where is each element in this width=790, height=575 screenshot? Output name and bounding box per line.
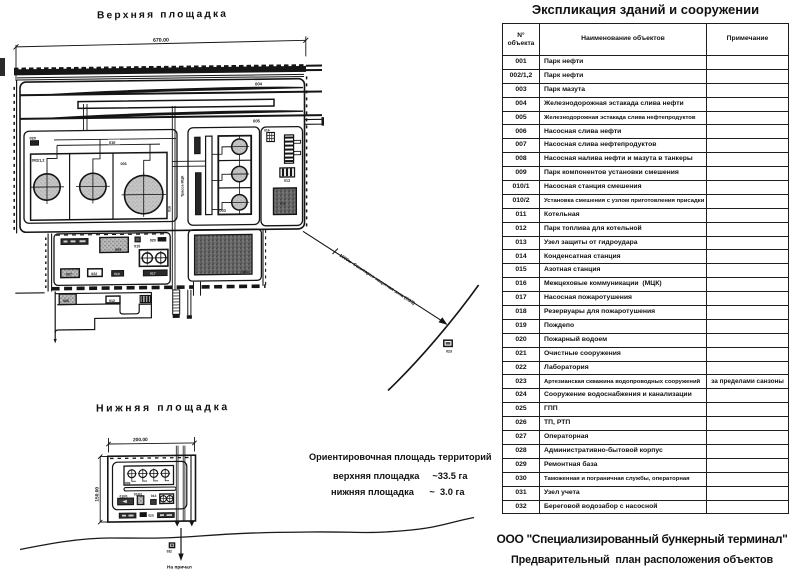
svg-text:013: 013 — [284, 179, 290, 183]
svg-text:Трасса МЦК: Трасса МЦК — [181, 175, 185, 197]
svg-text:019: 019 — [114, 272, 120, 276]
svg-text:021: 021 — [242, 270, 248, 274]
svg-text:022: 022 — [91, 272, 97, 276]
svg-text:016: 016 — [264, 128, 270, 132]
svg-text:012: 012 — [109, 299, 115, 303]
svg-text:016: 016 — [168, 206, 172, 212]
svg-text:150.00: 150.00 — [95, 487, 101, 502]
svg-text:017: 017 — [150, 272, 156, 276]
svg-text:027: 027 — [66, 272, 72, 276]
svg-text:009: 009 — [125, 481, 131, 485]
svg-text:001: 001 — [121, 162, 127, 166]
svg-text:005: 005 — [253, 118, 261, 123]
svg-text:013: 013 — [151, 494, 157, 498]
svg-text:670.00: 670.00 — [153, 38, 169, 44]
svg-text:003: 003 — [220, 209, 226, 213]
svg-text:006: 006 — [63, 299, 69, 303]
svg-text:015: 015 — [134, 244, 140, 248]
svg-text:200.00: 200.00 — [133, 437, 148, 443]
svg-text:032: 032 — [167, 549, 173, 553]
svg-text:002/1,2: 002/1,2 — [32, 159, 45, 163]
svg-text:020: 020 — [150, 238, 156, 242]
svg-text:1000м -Санитарно-защитная зон: 1000м -Санитарно-защитная зона (СЗЗ) — [338, 253, 416, 306]
svg-text:016: 016 — [109, 141, 115, 145]
svg-text:004: 004 — [255, 81, 263, 86]
svg-text:020: 020 — [30, 136, 36, 140]
svg-text:020: 020 — [148, 514, 154, 518]
svg-text:Верхняя площадка: Верхняя площадка — [97, 9, 228, 22]
svg-text:Нижняя площадка: Нижняя площадка — [96, 401, 230, 415]
svg-text:009: 009 — [115, 248, 121, 252]
svg-text:011: 011 — [280, 202, 286, 206]
svg-text:На причал: На причал — [167, 565, 192, 571]
svg-text:023: 023 — [446, 350, 452, 354]
